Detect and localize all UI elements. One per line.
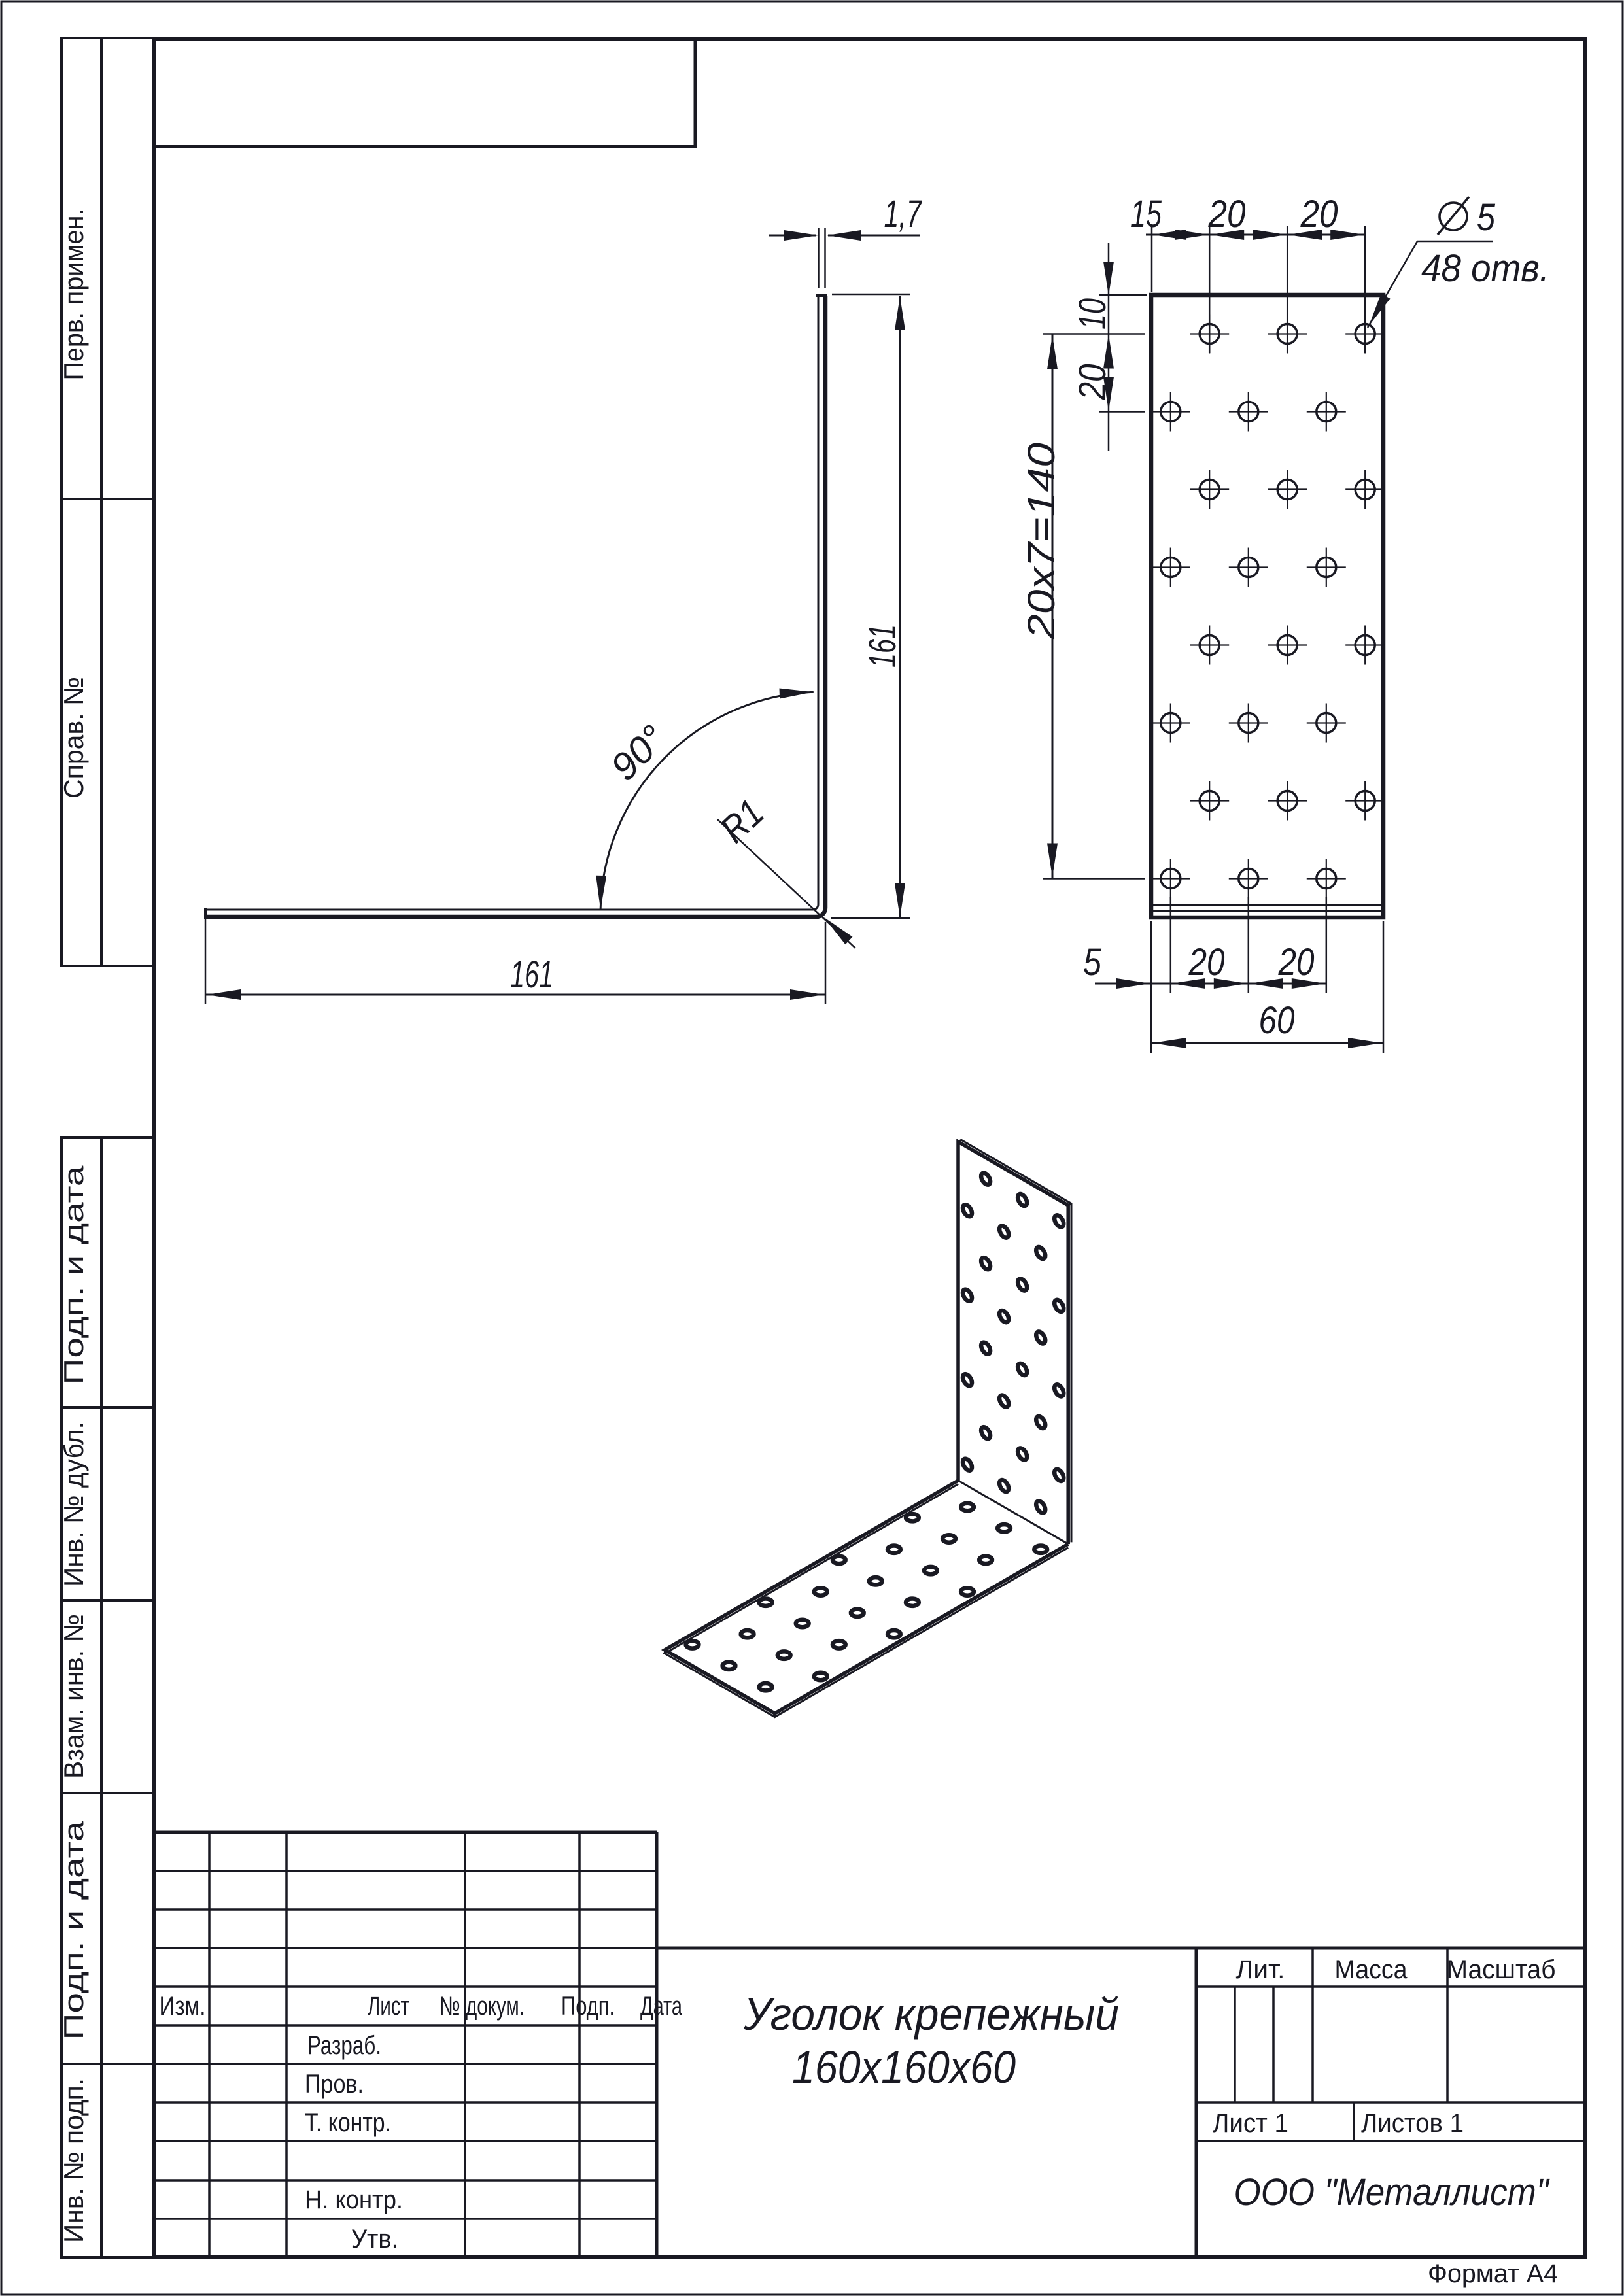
svg-text:Формат А4: Формат А4 [1428,2259,1558,2288]
svg-text:48 отв.: 48 отв. [1421,247,1549,290]
svg-text:Н. контр.: Н. контр. [305,2185,403,2214]
svg-text:Разраб.: Разраб. [307,2031,381,2060]
svg-text:20: 20 [1188,941,1225,984]
svg-text:60: 60 [1259,999,1295,1042]
svg-text:Масса: Масса [1335,1955,1408,1984]
svg-text:ООО "Металлист": ООО "Металлист" [1234,2171,1550,2214]
svg-text:Подп.: Подп. [561,1992,615,2021]
svg-text:Инв. № дубл.: Инв. № дубл. [58,1422,89,1586]
svg-text:№ докум.: № докум. [440,1992,525,2021]
svg-text:Изм.: Изм. [160,1992,206,2021]
svg-text:Уголок крепежный: Уголок крепежный [743,1989,1119,2040]
svg-text:Пров.: Пров. [305,2070,364,2099]
svg-text:Лист 1: Лист 1 [1213,2109,1288,2138]
svg-text:5: 5 [1477,196,1496,239]
svg-text:Т. контр.: Т. контр. [305,2108,391,2137]
svg-text:20: 20 [1300,193,1338,235]
svg-text:5: 5 [1083,941,1102,984]
svg-text:20: 20 [1208,193,1246,235]
svg-text:Справ. №: Справ. № [58,677,89,798]
svg-text:Листов 1: Листов 1 [1361,2109,1464,2138]
svg-text:160х160х60: 160х160х60 [792,2042,1016,2093]
svg-text:20х7=140: 20х7=140 [1020,443,1063,640]
svg-text:20: 20 [1278,941,1315,984]
svg-text:Инв. № подп.: Инв. № подп. [58,2078,89,2243]
svg-text:Утв.: Утв. [351,2225,398,2253]
svg-text:Дата: Дата [640,1992,683,2021]
svg-text:Масштаб: Масштаб [1447,1955,1556,1984]
svg-text:Подп. и дата: Подп. и дата [58,1165,89,1385]
svg-text:Взам. инв. №: Взам. инв. № [58,1614,89,1779]
svg-text:161: 161 [510,953,553,996]
svg-text:161: 161 [861,625,904,668]
svg-text:Лист: Лист [368,1992,409,2021]
svg-text:15: 15 [1130,193,1162,235]
svg-text:Перв. примен.: Перв. примен. [58,209,89,381]
svg-text:10: 10 [1071,298,1114,330]
svg-text:Лит.: Лит. [1236,1955,1285,1984]
svg-text:Подп. и дата: Подп. и дата [58,1821,89,2040]
svg-text:1,7: 1,7 [884,193,923,235]
svg-text:20: 20 [1071,364,1114,401]
